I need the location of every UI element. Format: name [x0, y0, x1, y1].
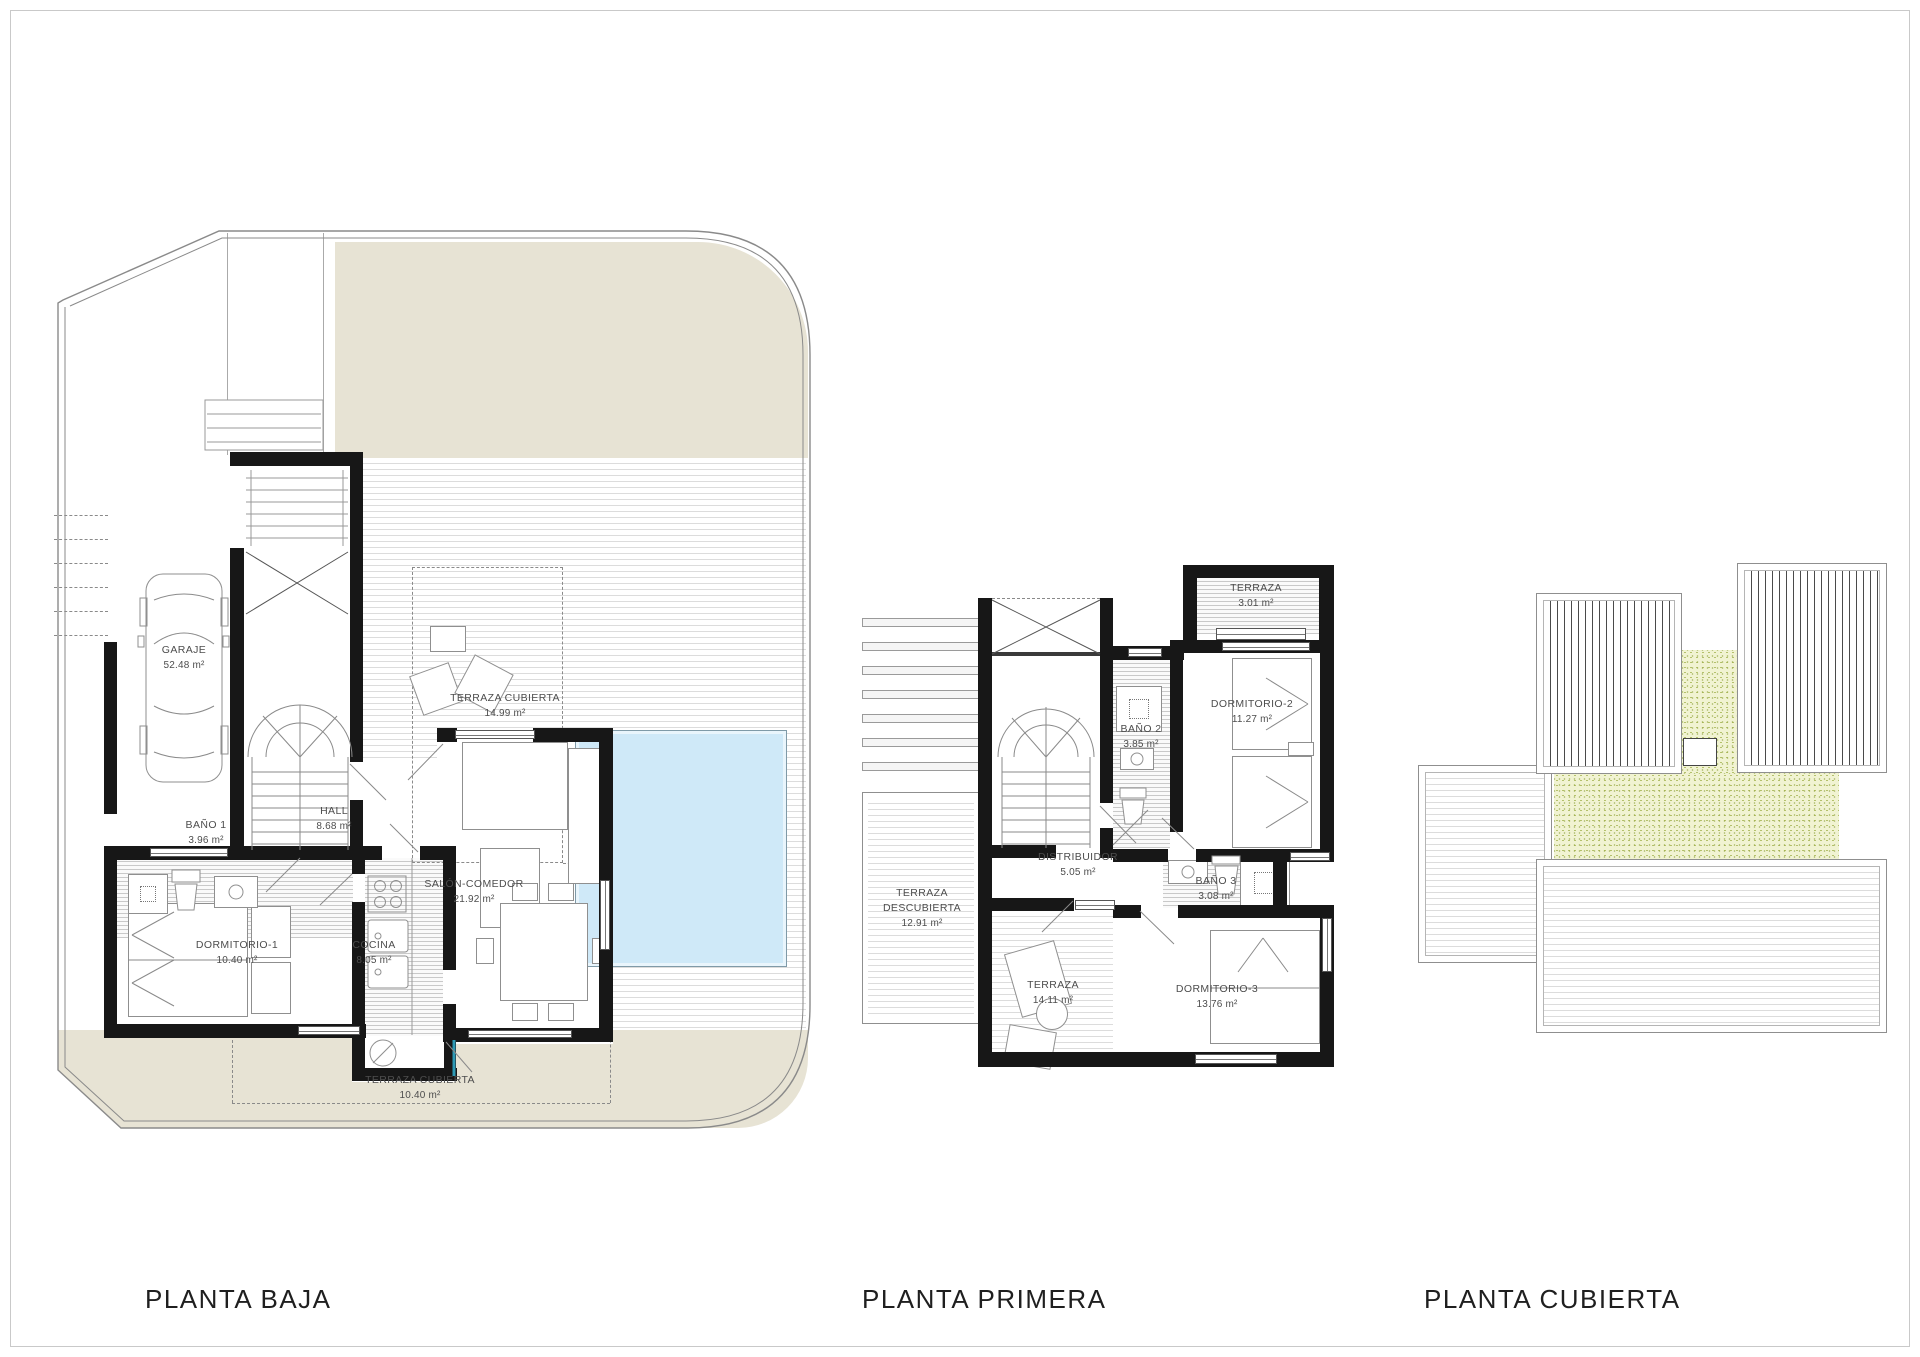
room-label-salon-comedor: SALÓN-COMEDOR21.92 m²	[424, 877, 523, 907]
roof-deck-west	[1418, 765, 1552, 963]
dining-chair	[548, 883, 574, 901]
window	[1128, 648, 1162, 657]
terrain-area-north	[335, 242, 808, 458]
green-roof-gravel	[1554, 773, 1839, 863]
room-label-dormitorio-3: DORMITORIO-313.76 m²	[1176, 982, 1258, 1012]
floor-plan-sheet: GARAJE52.48 m²TERRAZA CUBIERTA14.99 m²BA…	[0, 0, 1920, 1357]
wall	[1113, 849, 1168, 862]
room-label-dormitorio-2: DORMITORIO-211.27 m²	[1211, 697, 1293, 727]
driveway-dashed-line	[54, 539, 108, 540]
room-label-garaje: GARAJE52.48 m²	[162, 643, 206, 673]
wall	[978, 898, 1074, 911]
wall	[364, 846, 382, 860]
wall	[104, 846, 366, 860]
wall	[104, 642, 117, 814]
room-label-terraza-14: TERRAZA14.11 m²	[1027, 978, 1079, 1008]
stairwell-floor	[230, 452, 363, 862]
pergola-louver	[862, 618, 980, 627]
driveway-dashed-line	[54, 611, 108, 612]
wall	[1273, 849, 1287, 911]
room-label-terraza-descubierta: TERRAZA DESCUBIERTA12.91 m²	[862, 886, 982, 931]
wardrobe	[251, 962, 291, 1014]
wall	[1100, 598, 1113, 803]
wall	[1113, 905, 1141, 918]
wall	[437, 728, 457, 742]
wall	[1183, 565, 1334, 578]
sofa	[462, 742, 568, 830]
pergola-louver	[862, 762, 980, 771]
covered-terrace-dashed-outline	[232, 1103, 610, 1104]
driveway-dashed-line	[54, 635, 108, 636]
wall	[230, 452, 362, 466]
room-label-distribuidor: DISTRIBUIDOR5.05 m²	[1038, 850, 1118, 880]
wall	[443, 846, 456, 970]
dining-chair	[512, 1003, 538, 1021]
window	[1322, 918, 1332, 972]
driveway-dashed-line	[54, 587, 108, 588]
room-label-bano-2: BAÑO 23.85 m²	[1121, 722, 1162, 752]
window	[468, 1030, 572, 1038]
terrace-table	[430, 626, 466, 652]
window	[298, 1026, 360, 1035]
window	[150, 848, 228, 857]
wall	[978, 1052, 1334, 1067]
driveway-dashed-line	[54, 515, 108, 516]
nightstand	[1288, 742, 1314, 756]
room-label-terraza-cubierta-norte: TERRAZA CUBIERTA14.99 m²	[450, 691, 560, 721]
room-label-cocina: COCINA8.05 m²	[352, 938, 395, 968]
void-edge	[992, 652, 1100, 656]
walkway-edge-line	[227, 233, 228, 455]
driveway-dashed-line	[54, 563, 108, 564]
wall	[104, 846, 117, 1038]
room-label-terraza-3: TERRAZA3.01 m²	[1230, 581, 1282, 611]
title-planta-cubierta: PLANTA CUBIERTA	[1424, 1284, 1681, 1315]
window	[1222, 642, 1310, 651]
room-label-terraza-cubierta-sur: TERRAZA CUBIERTA10.40 m²	[365, 1073, 475, 1103]
room-label-hall: HALL8.68 m²	[316, 804, 351, 834]
room-label-bano-1: BAÑO 13.96 m²	[186, 818, 227, 848]
wall	[1320, 640, 1334, 862]
window	[600, 880, 610, 950]
title-planta-baja: PLANTA BAJA	[145, 1284, 332, 1315]
shower-tray	[128, 874, 168, 914]
window	[1216, 628, 1306, 640]
bathroom-sink	[214, 876, 258, 908]
dining-chair	[548, 1003, 574, 1021]
dining-table	[500, 903, 588, 1001]
wall	[350, 452, 363, 762]
ribbed-roof-east	[1737, 563, 1887, 773]
wall	[1178, 905, 1334, 918]
wall	[978, 598, 992, 1058]
covered-terrace-dashed-outline	[232, 1030, 233, 1103]
ribbed-roof-west	[1536, 593, 1682, 774]
wall	[444, 1042, 456, 1068]
void-dashed-edge	[992, 598, 1100, 599]
title-planta-primera: PLANTA PRIMERA	[862, 1284, 1106, 1315]
window	[1195, 1054, 1277, 1064]
pergola-louver	[862, 690, 980, 699]
bed-dormitorio-2	[1232, 756, 1312, 848]
walkway-edge-line	[323, 233, 324, 455]
pergola-louver	[862, 714, 980, 723]
roof-deck-south	[1536, 859, 1887, 1033]
wall	[1170, 640, 1183, 832]
pergola-louver	[862, 738, 980, 747]
room-label-dormitorio-1: DORMITORIO-110.40 m²	[196, 938, 278, 968]
window	[1290, 852, 1330, 861]
wall	[352, 902, 365, 1038]
terrace-door	[1075, 900, 1115, 910]
pergola-louver	[862, 666, 980, 675]
wall	[230, 548, 244, 858]
dining-chair	[476, 938, 494, 964]
room-label-bano-3: BAÑO 33.08 m²	[1196, 874, 1237, 904]
skylight	[1683, 738, 1717, 766]
pergola-louver	[862, 642, 980, 651]
window	[455, 730, 535, 739]
